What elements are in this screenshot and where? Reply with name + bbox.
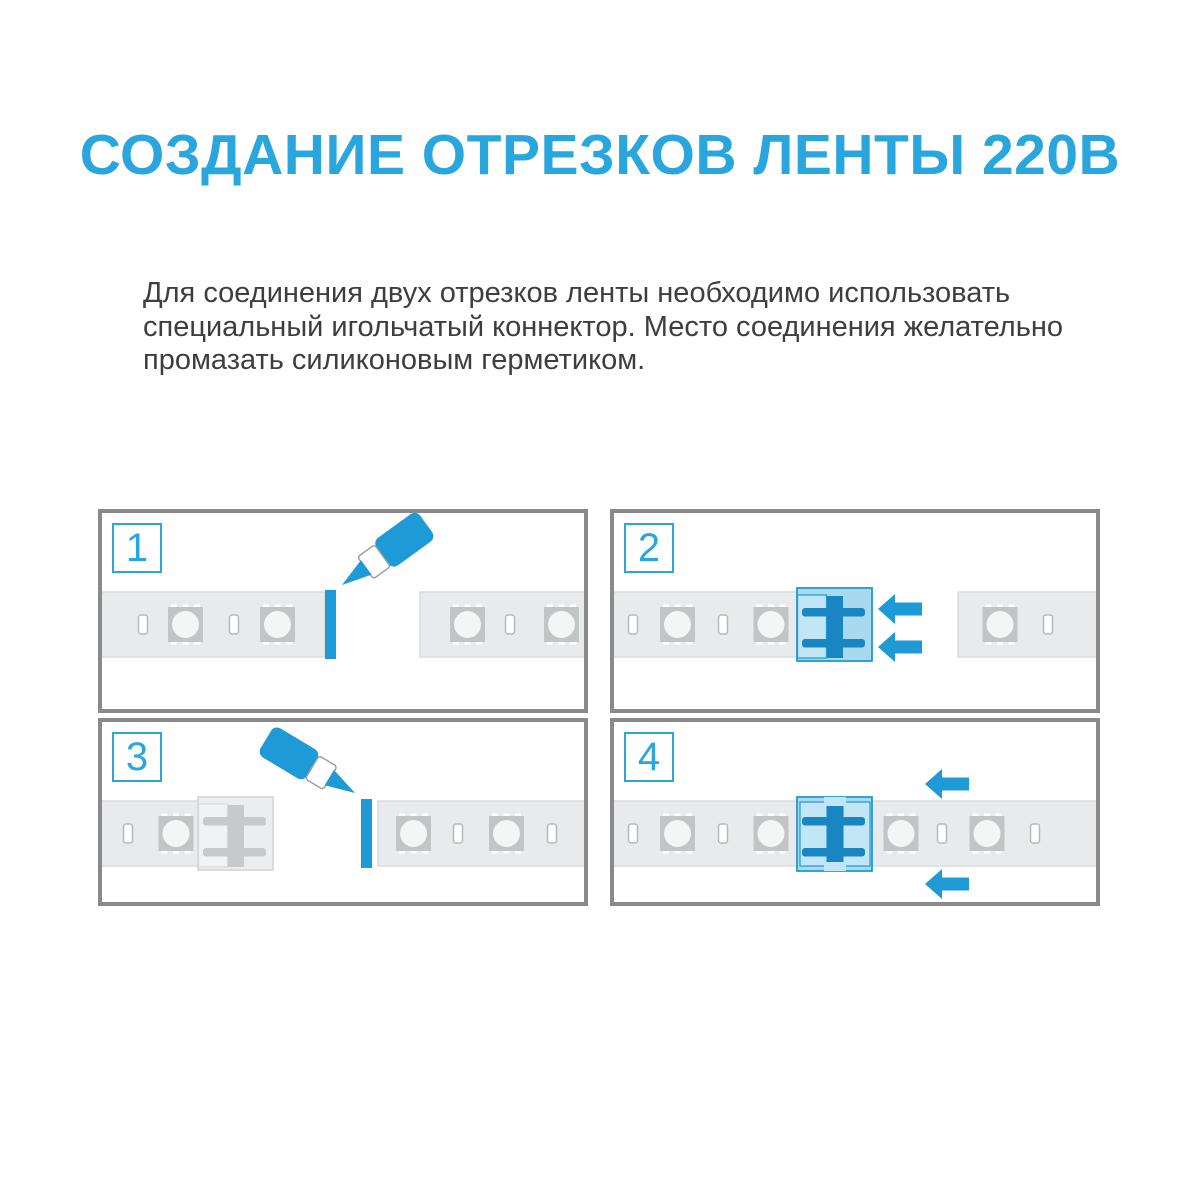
- infographic-page: СОЗДАНИЕ ОТРЕЗКОВ ЛЕНТЫ 220В Для соедине…: [0, 0, 1200, 1200]
- step-1-illustration: [102, 513, 584, 709]
- silicone-sealant-bar: [325, 590, 336, 659]
- needle-connector: [797, 797, 872, 871]
- step-number-badge: 3: [112, 732, 162, 782]
- description-line: Для соединения двух отрезков ленты необх…: [143, 277, 1083, 311]
- step-2-illustration: [614, 513, 1096, 709]
- led-strip-right: [958, 592, 1096, 657]
- arrow-left-icon: [925, 869, 969, 899]
- step-4-illustration: [614, 722, 1096, 902]
- glue-tube-icon: [332, 513, 436, 599]
- attached-connector: [198, 797, 273, 870]
- step-panel-3: 3: [98, 718, 588, 906]
- arrow-left-icon: [878, 632, 922, 662]
- needle-connector: [797, 588, 872, 661]
- step-number-badge: 2: [624, 523, 674, 573]
- step-3-illustration: [102, 722, 584, 902]
- arrow-left-icon: [925, 769, 969, 799]
- description-line: промазать силиконовым герметиком.: [143, 344, 1083, 378]
- description-line: специальный игольчатый коннектор. Место …: [143, 311, 1083, 345]
- led-strip-right: [378, 801, 584, 866]
- arrow-left-icon: [878, 594, 922, 624]
- led-strip-right: [420, 592, 584, 657]
- silicone-sealant-bar: [361, 799, 372, 868]
- step-panel-1: 1: [98, 509, 588, 713]
- step-number-badge: 4: [624, 732, 674, 782]
- step-number-badge: 1: [112, 523, 162, 573]
- step-panel-2: 2: [610, 509, 1100, 713]
- description-text: Для соединения двух отрезков ленты необх…: [143, 277, 1083, 378]
- glue-tube-icon: [257, 725, 364, 808]
- page-title: СОЗДАНИЕ ОТРЕЗКОВ ЛЕНТЫ 220В: [0, 122, 1200, 188]
- led-strip-left: [102, 592, 325, 657]
- step-panel-4: 4: [610, 718, 1100, 906]
